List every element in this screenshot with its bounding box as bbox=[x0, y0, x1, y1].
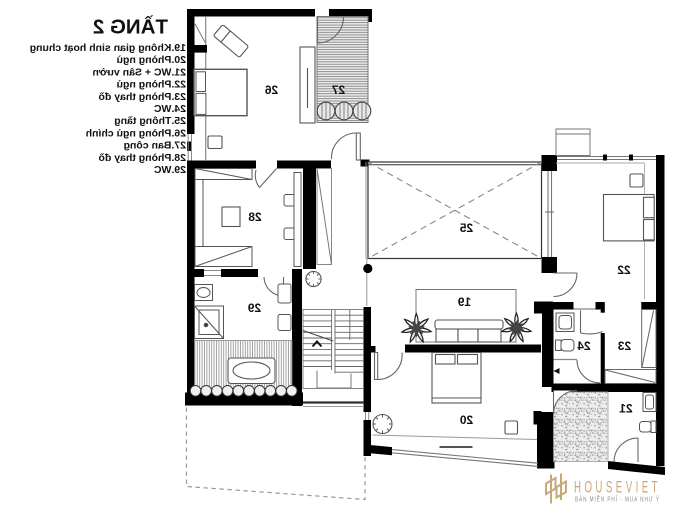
svg-text:25: 25 bbox=[460, 221, 474, 235]
svg-text:22: 22 bbox=[617, 263, 631, 277]
svg-text:26.Phòng ngủ chính: 26.Phòng ngủ chính bbox=[86, 127, 186, 139]
svg-text:19: 19 bbox=[458, 295, 472, 309]
svg-text:TẦNG 2: TẦNG 2 bbox=[93, 16, 168, 39]
svg-text:27: 27 bbox=[332, 83, 346, 97]
svg-text:24: 24 bbox=[577, 339, 591, 353]
svg-text:21.WC + Sân vườn: 21.WC + Sân vườn bbox=[92, 66, 186, 78]
svg-text:28.Phòng thay đồ: 28.Phòng thay đồ bbox=[98, 152, 186, 164]
svg-text:26: 26 bbox=[265, 83, 279, 97]
svg-text:19.Không gian sinh hoạt chung: 19.Không gian sinh hoạt chung bbox=[30, 42, 186, 54]
svg-text:20: 20 bbox=[460, 413, 474, 427]
svg-text:BẢN MIỀN PHÍ - MUA NHƯ Ý: BẢN MIỀN PHÍ - MUA NHƯ Ý bbox=[575, 494, 660, 504]
svg-text:23.Phòng thay đồ: 23.Phòng thay đồ bbox=[98, 91, 186, 103]
svg-text:29.WC: 29.WC bbox=[153, 164, 186, 176]
svg-text:27.Ban công: 27.Ban công bbox=[124, 140, 186, 152]
svg-text:29: 29 bbox=[248, 301, 262, 315]
svg-text:23: 23 bbox=[618, 339, 632, 353]
svg-text:21: 21 bbox=[619, 402, 633, 416]
svg-text:20.Phòng ngủ: 20.Phòng ngủ bbox=[117, 54, 186, 66]
svg-text:25.Thông tầng: 25.Thông tầng bbox=[114, 115, 186, 127]
svg-text:28: 28 bbox=[248, 210, 262, 224]
svg-text:22.Phòng ngủ: 22.Phòng ngủ bbox=[117, 79, 186, 91]
svg-text:24.WC: 24.WC bbox=[153, 103, 186, 115]
